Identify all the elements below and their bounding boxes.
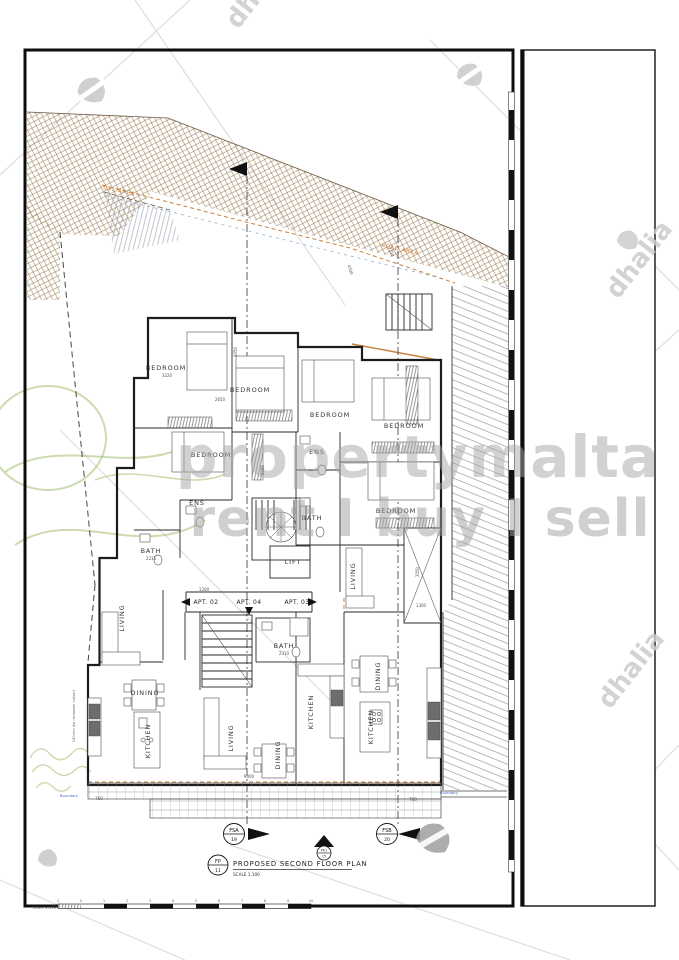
- marker-fsa-num: 19: [231, 837, 237, 843]
- watermark-brand: propertymalta: [176, 423, 660, 491]
- room-label-bedroom-3: BEDROOM: [310, 411, 350, 419]
- plan-scale-note: SCALE 1:100: [233, 872, 260, 877]
- tick: 10: [309, 899, 314, 903]
- dim-3220: 3220: [162, 373, 173, 378]
- apt02-arrow-icon: [181, 598, 190, 606]
- dim-2215: 2215: [146, 556, 157, 561]
- room-label-kitchen-2: KITCHEN: [307, 695, 315, 729]
- dining-tables: [124, 656, 396, 778]
- dim-760: 760: [95, 796, 103, 801]
- apt04-arrow-icon: [245, 607, 253, 615]
- tick: 1: [103, 899, 105, 903]
- marker-pe-code: PE1: [321, 849, 328, 853]
- room-label-dining-3: DINING: [374, 661, 382, 690]
- scale-bar-label: Scale 1:100: [33, 905, 57, 910]
- room-label-bath-3: BATH: [274, 642, 295, 650]
- room-label-bath-1: BATH: [141, 547, 162, 555]
- room-label-bedroom-1: BEDROOM: [146, 364, 186, 372]
- room-label-living-2: LIVING: [349, 562, 357, 589]
- room-label-bedroom-2: BEDROOM: [230, 386, 270, 394]
- room-label-kitchen-1: KITCHEN: [144, 724, 152, 758]
- section-markers: FSA 19 FSB 20 PE1 15: [224, 824, 421, 861]
- plan-title: PROPOSED SECOND FLOOR PLAN: [233, 860, 367, 868]
- dim-3050-a: 3050: [233, 346, 238, 357]
- watermark-dhalia-3: dhalia: [220, 0, 299, 34]
- dim-2310: 2310: [279, 651, 290, 656]
- furniture: [88, 332, 441, 778]
- boundary-label-left: Boundary: [60, 793, 79, 798]
- scale-bar: Scale 1:100 1 0 1 2 3 4 5 6 7 8 9 10: [33, 899, 314, 910]
- apt04-label: APT. 04: [237, 599, 262, 606]
- marker-fsa-code: FSA: [229, 828, 239, 834]
- room-label-lift: LIFT: [285, 558, 302, 566]
- apt02-label: APT. 02: [194, 599, 219, 606]
- marker-pe-arrow-icon: [314, 835, 334, 847]
- tick: 1: [57, 899, 59, 903]
- room-label-dining-2: DINING: [274, 740, 282, 769]
- tick: 8: [264, 899, 267, 903]
- room-label-dining-1: DINING: [130, 689, 159, 697]
- marker-fsb-num: 20: [384, 837, 390, 843]
- dim-4500: 4500: [346, 264, 354, 276]
- drawing-ref-num: 11: [215, 868, 221, 874]
- dim-9000: 9000: [244, 774, 255, 779]
- tick: 0: [80, 899, 83, 903]
- dim-700: 700: [409, 797, 417, 802]
- tick: 2: [126, 899, 128, 903]
- marker-pe-num: 15: [322, 855, 327, 859]
- dim-3050-b: 3050: [415, 566, 420, 577]
- floor-plan-sheet: BEDROOM BEDROOM BEDROOM BEDROOM BEDROOM …: [0, 0, 679, 960]
- drawing-ref-top: FP: [215, 859, 221, 865]
- scale-bar-ticks: 1 0 1 2 3 4 5 6 7 8 9 10: [57, 899, 314, 903]
- tick: 3: [149, 899, 151, 903]
- room-label-living-3: LIVING: [227, 724, 235, 751]
- apt03-label: APT. 03: [285, 599, 310, 606]
- culvert-note: 150mm dia rainwater culvert: [72, 689, 76, 742]
- tick: 9: [287, 899, 290, 903]
- title-block: FP 11 PROPOSED SECOND FLOOR PLAN SCALE 1…: [208, 855, 367, 877]
- dim-2650: 2650: [215, 397, 226, 402]
- boundary-label-right: Boundary: [440, 790, 459, 795]
- apt04-stair: [202, 615, 252, 687]
- tick: 7: [241, 899, 243, 903]
- dim-1300: 1300: [416, 603, 427, 608]
- room-label-living-1: LIVING: [118, 604, 126, 631]
- marker-fsa-arrow-icon: [248, 828, 270, 840]
- dim-1200: 1200: [199, 587, 210, 592]
- watermark-tagline: rent I buy I sell: [190, 489, 651, 549]
- tick: 4: [172, 899, 175, 903]
- room-label-kitchen-3: KITCHEN: [367, 710, 375, 744]
- upper-stair: [386, 294, 432, 330]
- tick: 6: [218, 899, 221, 903]
- tick: 5: [195, 899, 197, 903]
- marker-fsb-code: FSB: [382, 828, 392, 834]
